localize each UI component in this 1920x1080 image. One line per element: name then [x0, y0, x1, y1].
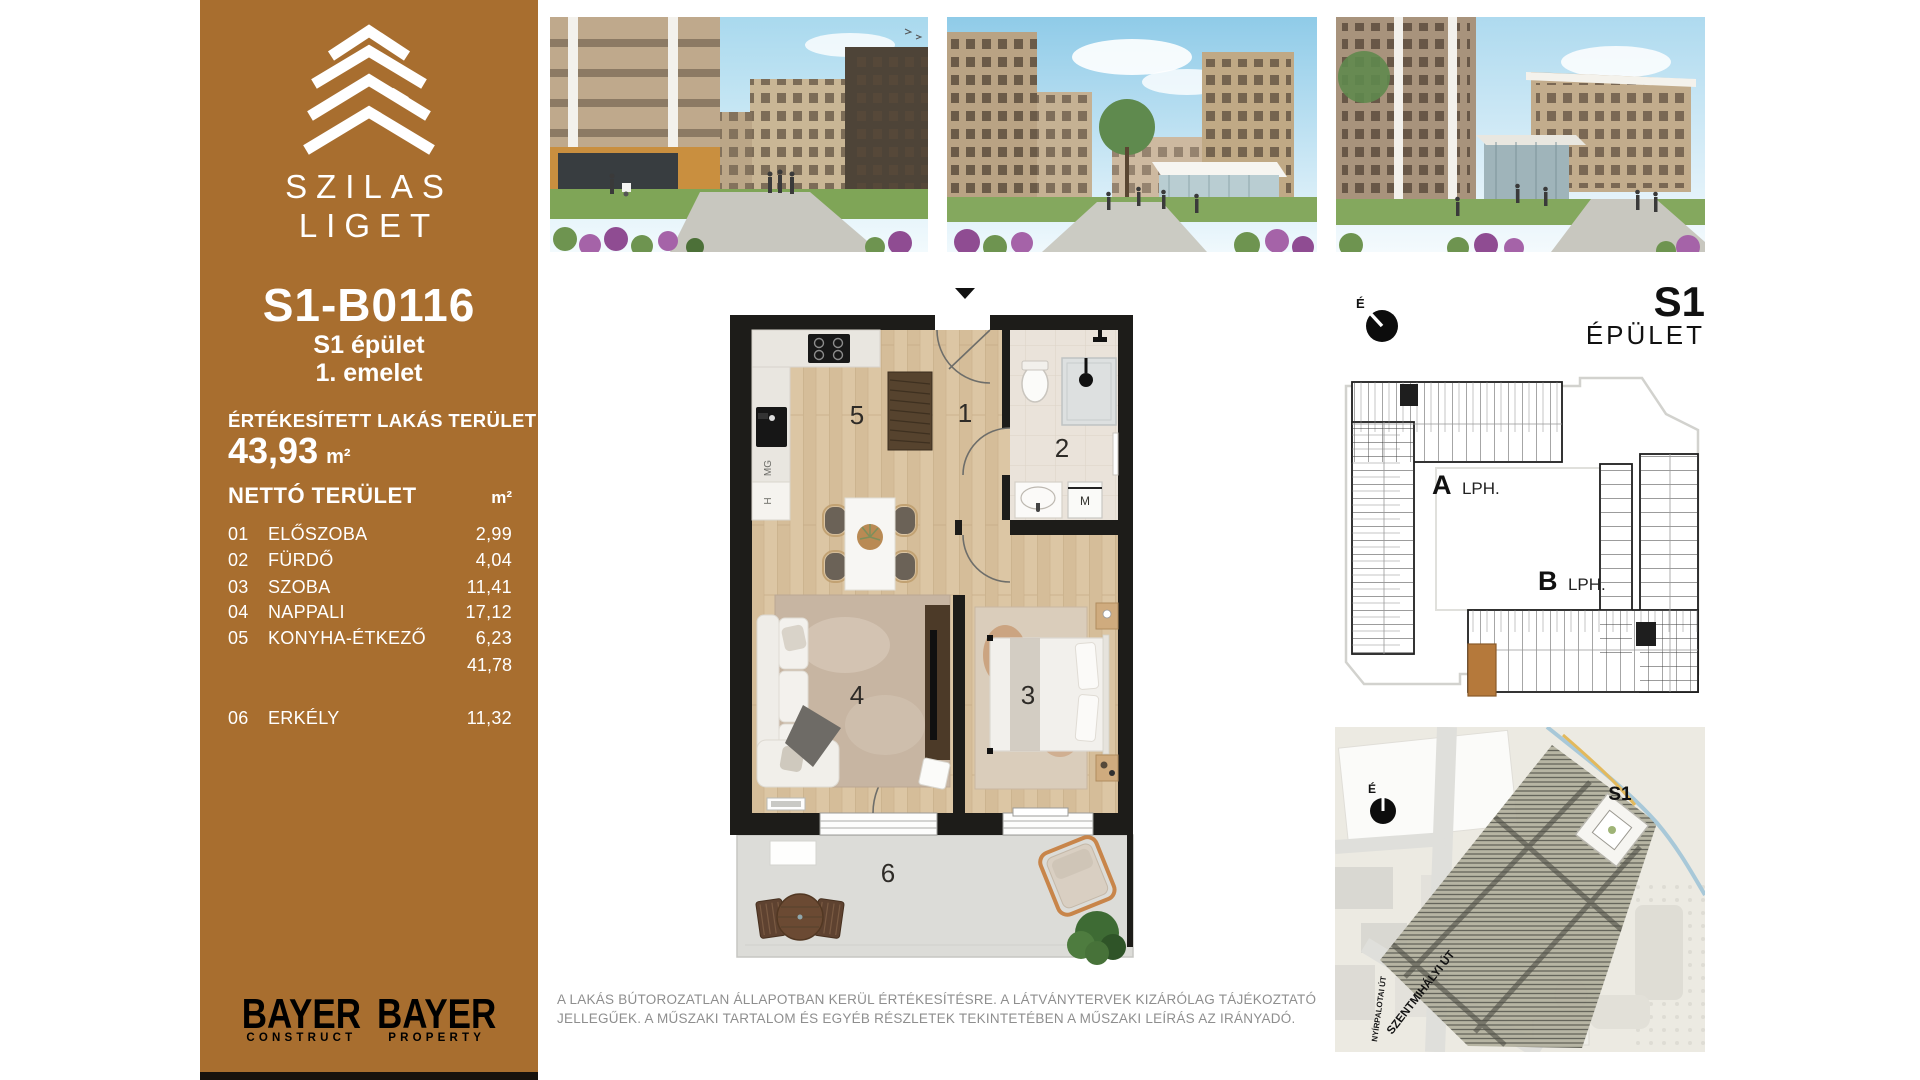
apartment-floor-plan: 1 2 3 4 5 6 MG H M: [725, 285, 1135, 965]
row-area: 17,12: [465, 602, 512, 623]
building-units: [1352, 382, 1698, 692]
fridge-label: H: [763, 497, 774, 504]
net-area-unit: m²: [491, 488, 512, 508]
bayer-construct-logo: BAYER CONSTRUCT: [242, 995, 361, 1044]
row-area: 4,04: [476, 550, 512, 571]
building-floor-plan: A LPH. B LPH.: [1340, 372, 1705, 700]
net-total: 41,78: [228, 655, 512, 676]
table-row: 05 KONYHA-ÉTKEZŐ 6,23: [228, 628, 512, 649]
wardrobe: [888, 372, 932, 450]
table-row: 02 FÜRDŐ 4,04: [228, 550, 512, 571]
sold-area-number: 43,93: [228, 430, 318, 471]
washer-label: M: [1080, 494, 1090, 508]
room-label-kitchen: 5: [850, 400, 864, 430]
net-area-header: NETTÓ TERÜLET m²: [228, 483, 512, 509]
building-plan-compass: É: [1340, 290, 1420, 350]
highlighted-unit: [1468, 644, 1496, 696]
row-name: KONYHA-ÉTKEZŐ: [268, 628, 476, 649]
table-row: 03 SZOBA 11,41: [228, 577, 512, 598]
sold-area-label: ÉRTÉKESÍTETT LAKÁS TERÜLET: [228, 410, 536, 432]
building-plan-title-code: S1: [1455, 282, 1705, 322]
render-photo-3: [1336, 17, 1705, 252]
entrance-arrow-icon: [955, 288, 975, 299]
row-area: 6,23: [476, 628, 512, 649]
room-label-bath: 2: [1055, 433, 1069, 463]
site-map: S1 É NYÍRPALOTAI ÚT SZENTMIHÁLYI ÚT: [1335, 727, 1705, 1052]
row-name: ERKÉLY: [268, 708, 467, 729]
row-num: 02: [228, 550, 268, 571]
sidebar-footer-strip: [200, 1072, 538, 1080]
row-name: ELŐSZOBA: [268, 524, 476, 545]
row-num: 05: [228, 628, 268, 649]
row-area: 11,32: [467, 708, 512, 729]
developer-logos: BAYER CONSTRUCT BAYER PROPERTY: [200, 995, 538, 1044]
sold-area-value: 43,93m²: [228, 430, 351, 472]
table-row-balcony: 06 ERKÉLY 11,32: [228, 708, 512, 729]
logo-name: BAYER: [377, 995, 496, 1035]
stair-a-bold: A: [1432, 470, 1452, 500]
render-photo-2: [947, 17, 1317, 252]
stair-b-bold: B: [1538, 566, 1558, 596]
row-num: 01: [228, 524, 268, 545]
building-plan-title-word: ÉPÜLET: [1455, 322, 1705, 348]
room-label-living: 4: [850, 680, 864, 710]
disclaimer-line-2: JELLEGŰEK. A MŰSZAKI TARTALOM ÉS EGYÉB R…: [557, 1009, 1347, 1028]
compass-north-label: É: [1356, 296, 1365, 311]
row-area: 2,99: [476, 524, 512, 545]
row-num: 03: [228, 577, 268, 598]
table-row: 04 NAPPALI 17,12: [228, 602, 512, 623]
row-name: FÜRDŐ: [268, 550, 476, 571]
disclaimer-line-1: A LAKÁS BÚTOROZATLAN ÁLLAPOTBAN KERÜL ÉR…: [557, 990, 1347, 1009]
dishwasher-label: MG: [763, 460, 774, 476]
row-name: NAPPALI: [268, 602, 465, 623]
szilas-liget-logo-icon: [284, 18, 454, 158]
brand-line-1: SZILAS: [200, 168, 538, 206]
floor-line: 1. emelet: [200, 359, 538, 388]
brand-line-2: LIGET: [200, 207, 538, 245]
building-plan-title: S1 ÉPÜLET: [1455, 282, 1705, 348]
row-name: SZOBA: [268, 577, 467, 598]
room-label-hall: 1: [958, 398, 972, 428]
datasheet-page: SZILAS LIGET S1-B0116 S1 épület 1. emele…: [0, 0, 1920, 1080]
row-area: 11,41: [467, 577, 512, 598]
render-photo-1: [550, 17, 928, 252]
room-label-bedroom: 3: [1021, 680, 1035, 710]
net-area-label: NETTÓ TERÜLET: [228, 483, 417, 509]
stair-a-text: LPH.: [1462, 479, 1500, 498]
logo-name: BAYER: [242, 995, 361, 1035]
table-row: 01 ELŐSZOBA 2,99: [228, 524, 512, 545]
disclaimer: A LAKÁS BÚTOROZATLAN ÁLLAPOTBAN KERÜL ÉR…: [557, 990, 1347, 1028]
sold-area-unit: m²: [326, 446, 350, 468]
stair-b-text: LPH.: [1568, 575, 1606, 594]
row-num: 06: [228, 708, 268, 729]
compass-north-label: É: [1368, 781, 1376, 796]
sidebar: SZILAS LIGET S1-B0116 S1 épület 1. emele…: [200, 0, 538, 1072]
stair-b-label: B LPH.: [1538, 566, 1606, 596]
building-line: S1 épület: [200, 331, 538, 360]
stair-a-label: A LPH.: [1432, 470, 1500, 500]
row-num: 04: [228, 602, 268, 623]
map-s1-label: S1: [1608, 784, 1632, 805]
bayer-property-logo: BAYER PROPERTY: [377, 995, 496, 1044]
room-label-balcony: 6: [881, 858, 895, 888]
unit-code: S1-B0116: [200, 278, 538, 332]
